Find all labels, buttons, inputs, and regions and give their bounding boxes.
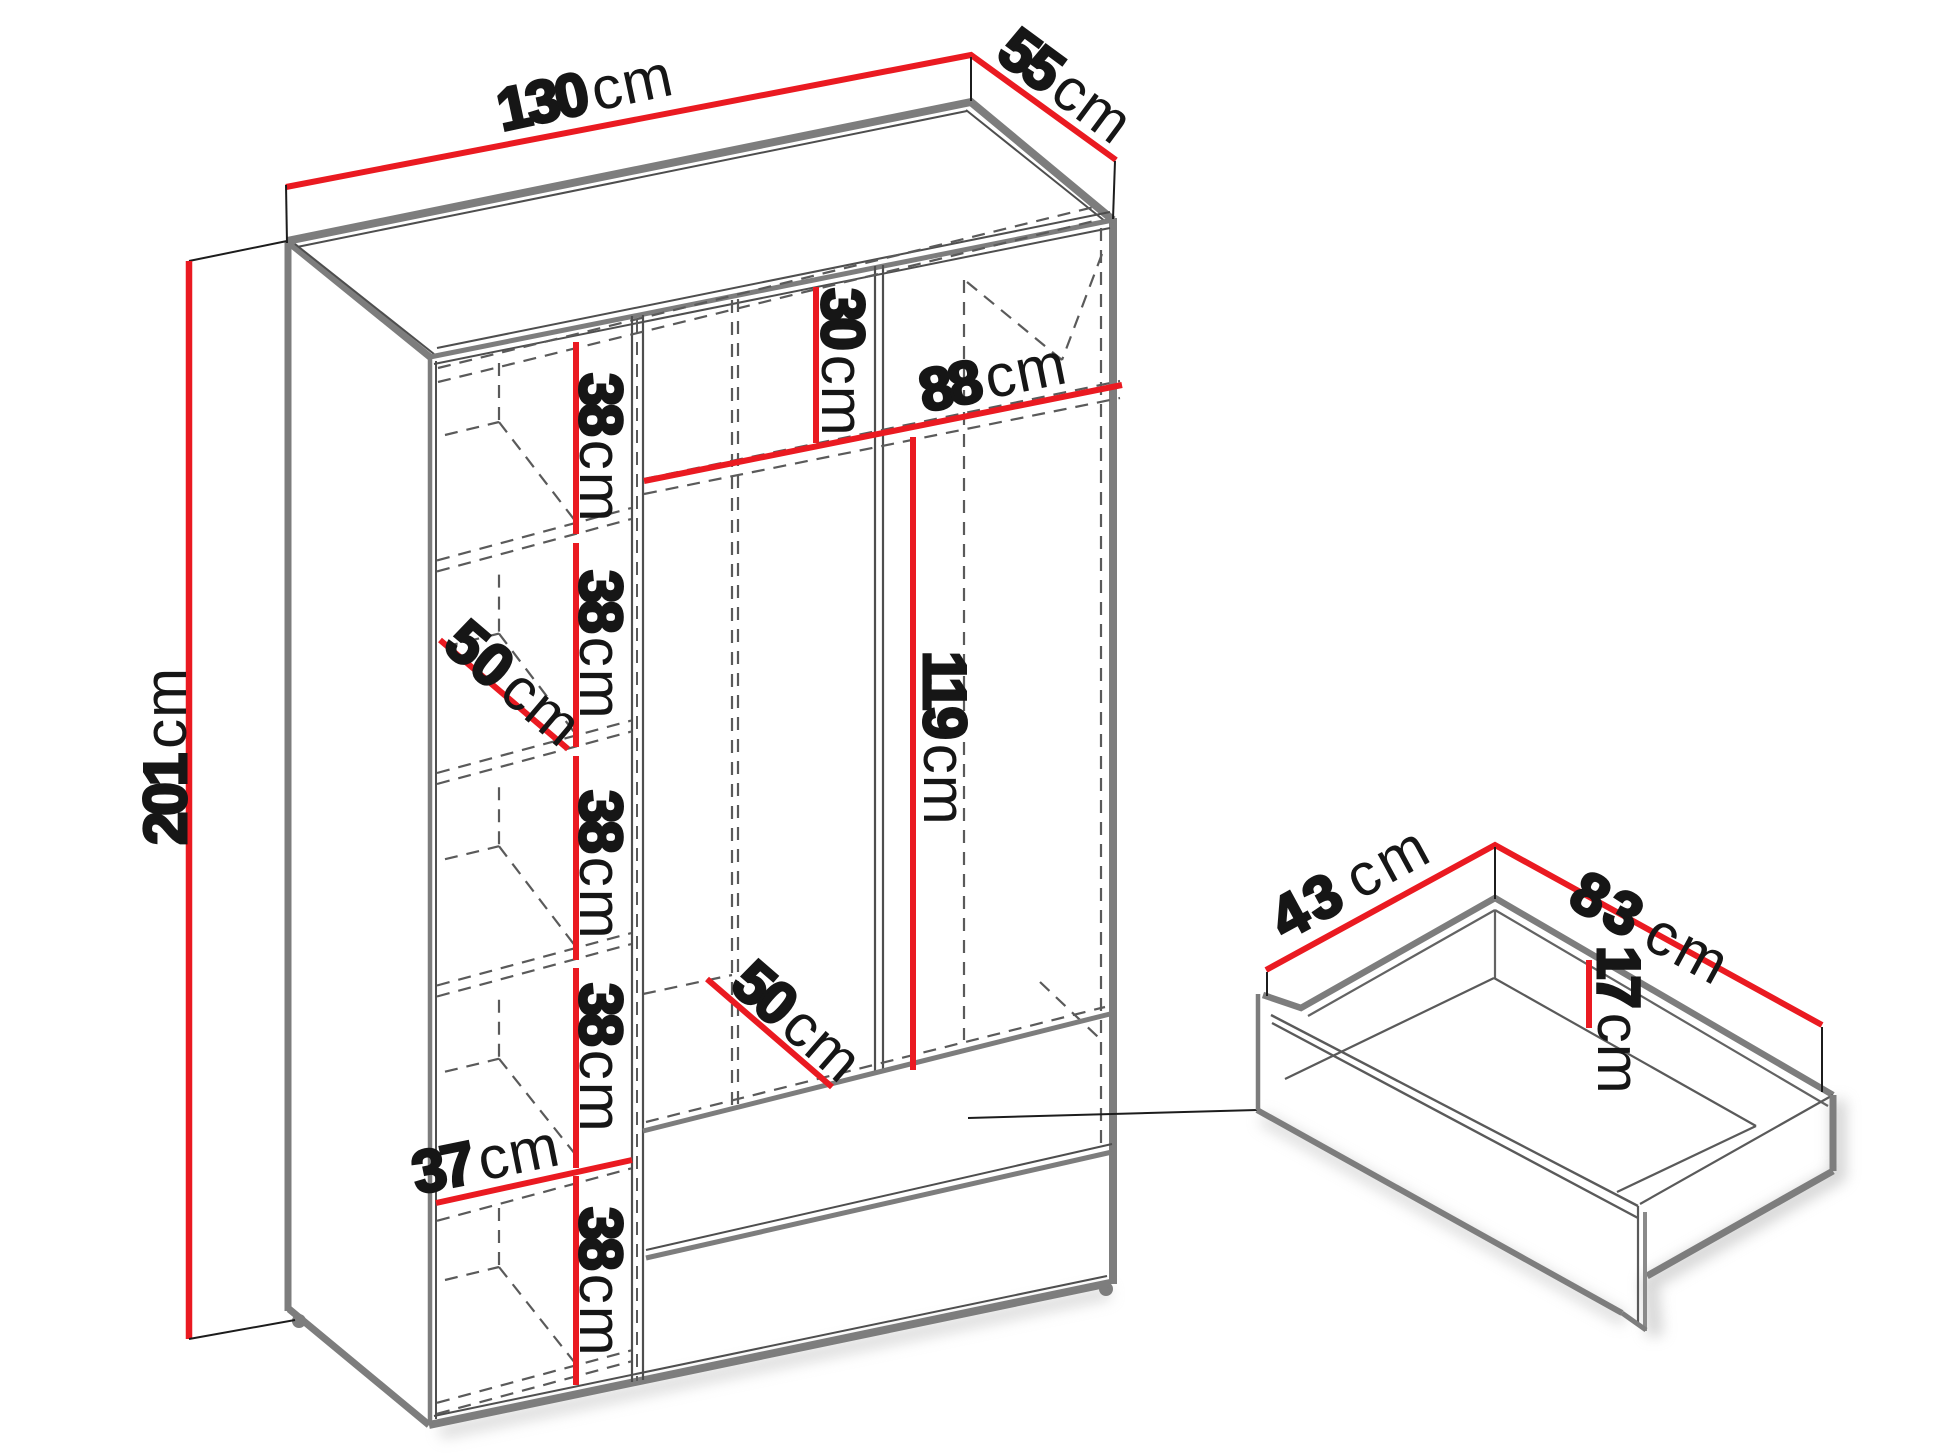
svg-text:30cm: 30cm	[809, 288, 876, 437]
svg-text:38cm: 38cm	[567, 373, 634, 524]
svg-text:38cm: 38cm	[567, 983, 634, 1134]
svg-text:17cm: 17cm	[1585, 946, 1652, 1095]
svg-text:38cm: 38cm	[567, 790, 634, 941]
svg-text:38cm: 38cm	[567, 1207, 634, 1358]
